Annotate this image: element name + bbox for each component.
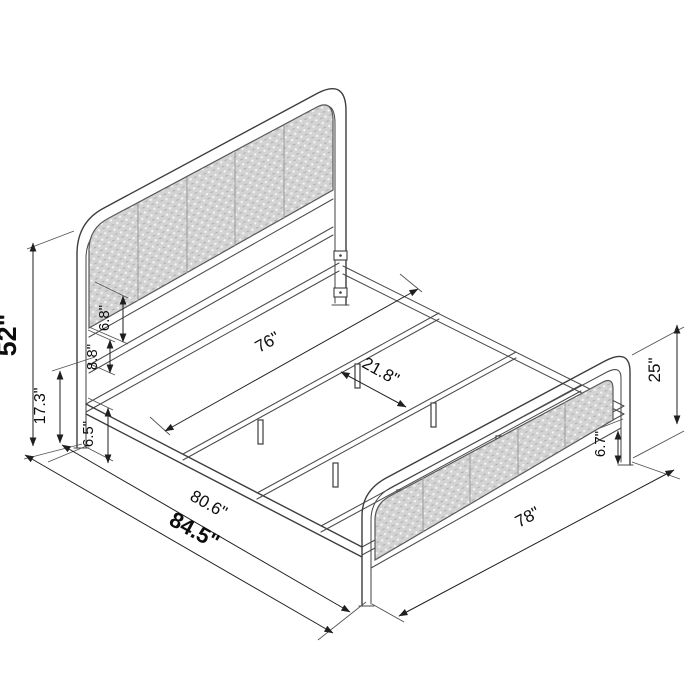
headboard: [74, 89, 349, 448]
dim-label-footboard-width: 78": [512, 503, 543, 531]
support-leg: [431, 403, 436, 427]
support-leg: [333, 463, 338, 487]
dim-label-overall-height: 52": [0, 314, 22, 357]
bed-dimension-diagram: 52" 17.3" 6.5" 8.8" 6.8" 76" 21.8" 80.6"…: [0, 0, 700, 700]
diagram-canvas: 52" 17.3" 6.5" 8.8" 6.8" 76" 21.8" 80.6"…: [0, 0, 700, 700]
bracket-bolt: [339, 291, 342, 294]
bed-illustration: [74, 89, 633, 606]
dim-line-overall-length: [25, 455, 333, 633]
dim-label-leg-height: 17.3": [32, 388, 49, 425]
support-leg: [258, 420, 263, 444]
dim-label-panel-gap: 6.8": [96, 305, 113, 331]
bracket-bolt: [339, 254, 342, 257]
footboard: [359, 356, 633, 606]
dim-label-clearance: 6.5": [80, 421, 97, 447]
dim-label-crossbar-gap: 8.8": [84, 344, 101, 370]
dim-label-footboard-clearance: 6.7": [592, 431, 609, 457]
headboard-feet: [74, 305, 349, 448]
bed-frame: [86, 263, 624, 557]
dim-label-footboard-height: 25": [645, 358, 664, 383]
dim-label-crossbar-spacing: 21.8": [359, 353, 402, 389]
far-side-rail: [343, 266, 624, 414]
support-crossbar-1: [183, 313, 439, 460]
near-side-rail: [86, 404, 362, 557]
footboard-cane-panel: [375, 381, 613, 560]
dim-label-inner-width: 76": [252, 328, 283, 357]
